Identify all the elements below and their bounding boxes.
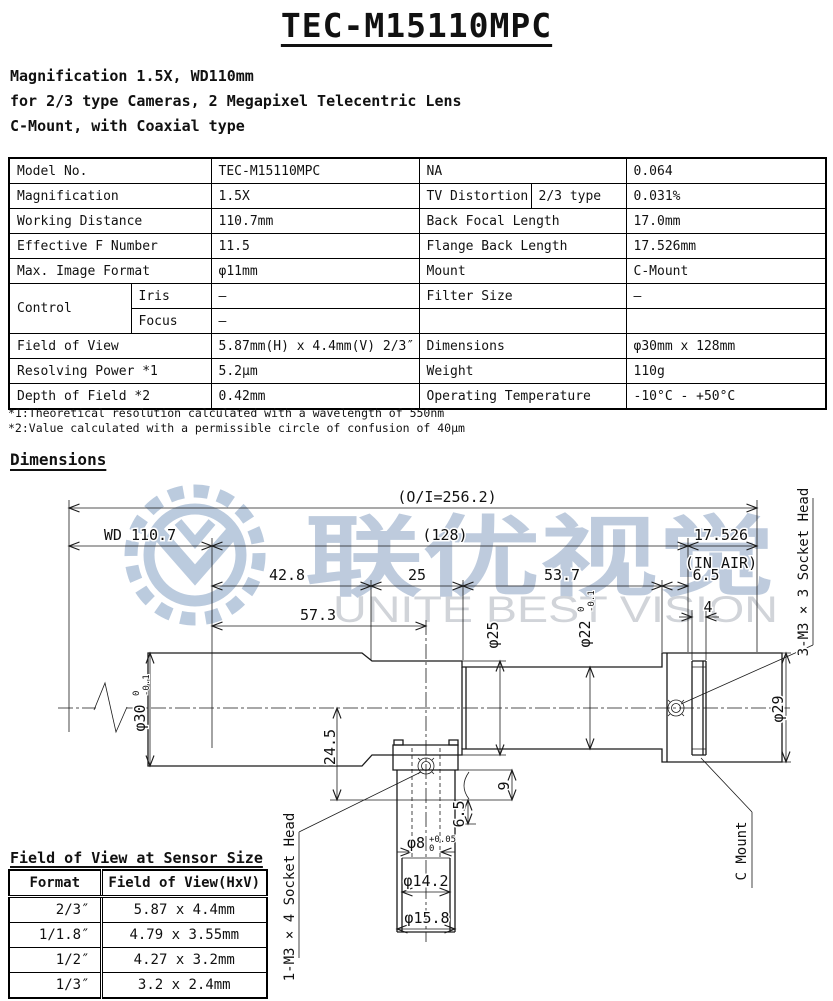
fov-heading: Field of View at Sensor Size [10, 849, 263, 867]
svg-text:C Mount: C Mount [734, 821, 750, 880]
spec-value: – [211, 309, 419, 334]
fov-row: 1/2″ 4.27 x 3.2mm [9, 948, 267, 973]
svg-text:3-M3 × 3 Socket Head: 3-M3 × 3 Socket Head [796, 488, 812, 657]
spec-label: Weight [419, 359, 626, 384]
fov-row: 1/1.8″ 4.79 x 3.55mm [9, 923, 267, 948]
fov-col-format: Format [9, 870, 101, 897]
subtitle-line-1: Magnification 1.5X, WD110mm [10, 67, 254, 85]
spec-value: 5.2μm [211, 359, 419, 384]
fov-format: 1/3″ [9, 973, 101, 999]
fov-table: Format Field of View(HxV) 2/3″ 5.87 x 4.… [8, 869, 268, 999]
svg-text:0: 0 [429, 844, 434, 854]
spec-row-mif-mount: Max. Image Format φ11mm Mount C-Mount [9, 259, 826, 284]
svg-text:φ29: φ29 [769, 695, 787, 722]
svg-text:φ22: φ22 [576, 620, 594, 647]
fov-format: 1/1.8″ [9, 923, 101, 948]
label-socket1: 1-M3 × 4 Socket Head [282, 813, 298, 982]
spec-label: Back Focal Length [419, 209, 626, 234]
dim-53-7: 53.7 [544, 566, 580, 584]
fov-header-row: Format Field of View(HxV) [9, 870, 267, 897]
spec-value: 17.0mm [626, 209, 826, 234]
spec-value: 5.87mm(H) x 4.4mm(V) 2/3″ [211, 334, 419, 359]
spec-value: 110g [626, 359, 826, 384]
spec-value: φ30mm x 128mm [626, 334, 826, 359]
spec-sublabel: 2/3 type [531, 184, 626, 209]
fov-col-fov: Field of View(HxV) [101, 870, 267, 897]
spec-row-fov-dims: Field of View 5.87mm(H) x 4.4mm(V) 2/3″ … [9, 334, 826, 359]
dim-6-5-port: 6.5 [450, 800, 468, 827]
spec-label: TV Distortion [419, 184, 531, 209]
spec-label: Model No. [9, 158, 211, 184]
page-title: TEC-M15110MPC [0, 6, 833, 45]
svg-text:φ8: φ8 [407, 834, 425, 852]
lens-outline [148, 653, 782, 766]
dim-42-8: 42.8 [269, 566, 305, 584]
fov-value: 4.27 x 3.2mm [101, 948, 267, 973]
dim-dia25: φ25 [484, 621, 502, 648]
dim-wd: WD 110.7 [104, 526, 176, 544]
spec-row-model-na: Model No. TEC-M15110MPC NA 0.064 [9, 158, 826, 184]
dim-dia8: φ8 +0.05 0 [407, 834, 456, 854]
spec-row-iris-filter: Control Iris – Filter Size – [9, 284, 826, 309]
label-cmount: C Mount [734, 821, 750, 880]
spec-label: Flange Back Length [419, 234, 626, 259]
fov-value: 3.2 x 2.4mm [101, 973, 267, 999]
spec-value: 0.031% [626, 184, 826, 209]
spec-row-wd-bfl: Working Distance 110.7mm Back Focal Leng… [9, 209, 826, 234]
dim-dia29: φ29 [769, 695, 787, 722]
svg-text:9: 9 [495, 781, 513, 790]
spec-label: Field of View [9, 334, 211, 359]
fov-format: 2/3″ [9, 897, 101, 923]
svg-text:φ30: φ30 [131, 704, 149, 731]
dimensions-heading: Dimensions [10, 450, 106, 469]
spec-value: 17.526mm [626, 234, 826, 259]
spec-label: Control [9, 284, 131, 334]
spec-sublabel: Iris [131, 284, 211, 309]
dim-4: 4 [703, 598, 712, 616]
spec-table: Model No. TEC-M15110MPC NA 0.064 Magnifi… [8, 157, 827, 410]
spec-value: -10°C - +50°C [626, 384, 826, 410]
spec-label: Dimensions [419, 334, 626, 359]
svg-text:-0.1: -0.1 [142, 674, 152, 696]
spec-value: 110.7mm [211, 209, 419, 234]
spec-value: – [211, 284, 419, 309]
svg-text:φ25: φ25 [484, 621, 502, 648]
spec-row-focus-empty: Focus – [9, 309, 826, 334]
dim-dia30: φ30 0 -0.1 [131, 674, 152, 731]
spec-value: C-Mount [626, 259, 826, 284]
dim-57-3: 57.3 [300, 606, 336, 624]
spec-label: Mount [419, 259, 626, 284]
spec-label: Resolving Power *1 [9, 359, 211, 384]
subtitle: Magnification 1.5X, WD110mm for 2/3 type… [10, 64, 462, 139]
spec-label: Filter Size [419, 284, 626, 309]
footnotes: *1:Theoretical resolution calculated wit… [8, 406, 465, 436]
spec-label: Effective F Number [9, 234, 211, 259]
spec-label: Max. Image Format [9, 259, 211, 284]
dim-9: 9 [495, 781, 513, 790]
dim-dia14-2: φ14.2 [403, 872, 448, 890]
footnote-2: *2:Value calculated with a permissible c… [8, 421, 465, 435]
spec-label-empty [419, 309, 626, 334]
dim-6-5: 6.5 [692, 566, 719, 584]
spec-row-rp-weight: Resolving Power *1 5.2μm Weight 110g [9, 359, 826, 384]
spec-value: 1.5X [211, 184, 419, 209]
svg-text:1-M3 × 4 Socket Head: 1-M3 × 4 Socket Head [282, 813, 298, 982]
dim-17-526: 17.526 [694, 526, 748, 544]
spec-sublabel: Focus [131, 309, 211, 334]
fov-value: 4.79 x 3.55mm [101, 923, 267, 948]
svg-text:0: 0 [577, 607, 587, 612]
watermark: 联优视觉 UNITE BEST VISION [131, 491, 778, 630]
gear-logo-icon [131, 491, 259, 619]
fov-row: 2/3″ 5.87 x 4.4mm [9, 897, 267, 923]
subtitle-line-2: for 2/3 type Cameras, 2 Megapixel Telece… [10, 92, 462, 110]
spec-label: Magnification [9, 184, 211, 209]
fov-value: 5.87 x 4.4mm [101, 897, 267, 923]
spec-value: φ11mm [211, 259, 419, 284]
dim-128: (128) [422, 526, 467, 544]
footnote-1: *1:Theoretical resolution calculated wit… [8, 406, 444, 420]
label-socket3: 3-M3 × 3 Socket Head [796, 488, 812, 657]
spec-value: 11.5 [211, 234, 419, 259]
spec-label: Working Distance [9, 209, 211, 234]
svg-text:-0.1: -0.1 [587, 590, 597, 612]
fov-format: 1/2″ [9, 948, 101, 973]
spec-label: NA [419, 158, 626, 184]
spec-value: TEC-M15110MPC [211, 158, 419, 184]
dim-24-5: 24.5 [321, 729, 339, 765]
subtitle-line-3: C-Mount, with Coaxial type [10, 117, 245, 135]
dim-25: 25 [408, 566, 426, 584]
svg-text:24.5: 24.5 [321, 729, 339, 765]
dim-oi: (O/I=256.2) [397, 488, 496, 506]
spec-value: – [626, 284, 826, 309]
spec-row-mag-tvd: Magnification 1.5X TV Distortion 2/3 typ… [9, 184, 826, 209]
spec-row-efn-fbl: Effective F Number 11.5 Flange Back Leng… [9, 234, 826, 259]
spec-value: 0.064 [626, 158, 826, 184]
svg-text:6.5: 6.5 [450, 800, 468, 827]
dim-dia15-8: φ15.8 [404, 909, 449, 927]
datasheet-page: TEC-M15110MPC Magnification 1.5X, WD110m… [0, 0, 833, 1001]
spec-value-empty [626, 309, 826, 334]
fov-row: 1/3″ 3.2 x 2.4mm [9, 973, 267, 999]
svg-text:0: 0 [132, 691, 142, 696]
